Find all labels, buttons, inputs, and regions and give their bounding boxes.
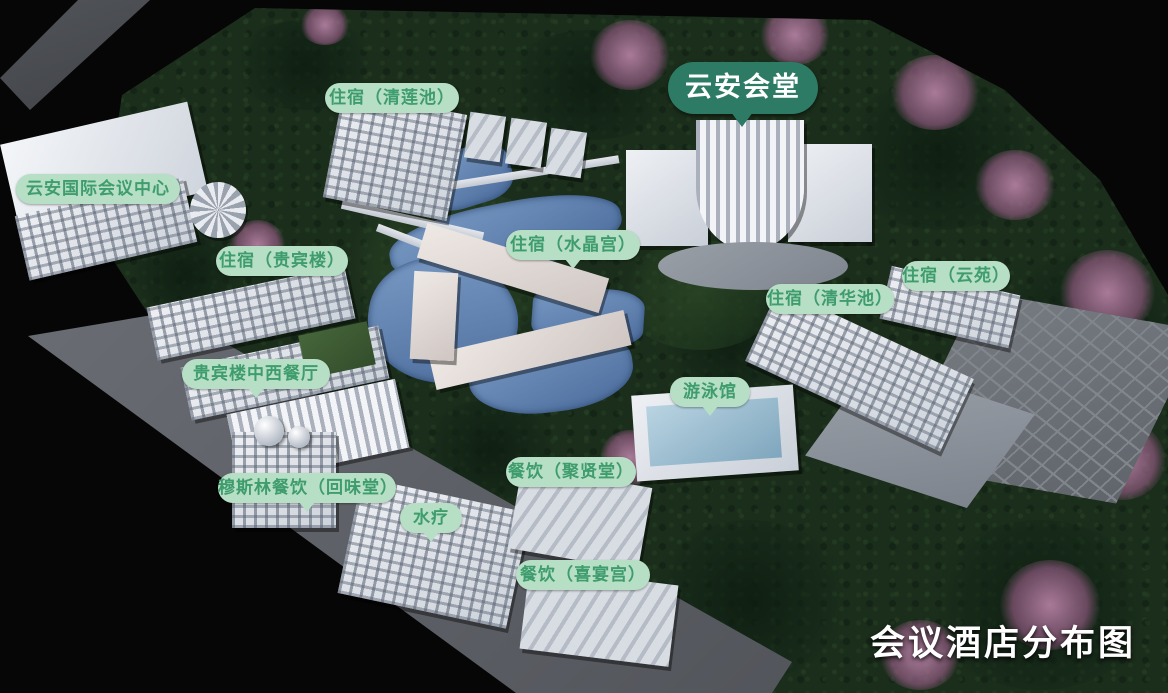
building-yunan-hall bbox=[696, 120, 804, 250]
mosque-dome bbox=[288, 426, 310, 448]
label-shuijinggong: 住宿（水晶宫） bbox=[506, 230, 640, 260]
map-title: 会议酒店分布图 bbox=[870, 615, 1136, 666]
blossom-trees bbox=[975, 150, 1055, 220]
label-qinghuachi: 住宿（清华池） bbox=[766, 284, 894, 314]
label-conference-center: 云安国际会议中心 bbox=[16, 174, 180, 204]
label-xiyangong: 餐饮（喜宴宫） bbox=[516, 560, 650, 590]
label-shuiliao: 水疗 bbox=[400, 503, 462, 533]
villa bbox=[464, 112, 506, 163]
blossom-trees bbox=[890, 55, 980, 130]
blossom-trees bbox=[590, 20, 670, 90]
main-badge-yunan-hall: 云安会堂 bbox=[668, 62, 818, 114]
label-guibinlou: 住宿（贵宾楼） bbox=[216, 246, 348, 276]
villa bbox=[545, 128, 587, 179]
villa bbox=[505, 118, 547, 169]
building-shuijinggong bbox=[410, 271, 459, 361]
blossom-trees bbox=[760, 5, 830, 65]
hotel-map: 云安会堂 住宿（清莲池） 云安国际会议中心 住宿（贵宾楼） 住宿（水晶宫） 住宿… bbox=[0, 0, 1168, 693]
label-yunyuan: 住宿（云苑） bbox=[902, 261, 1010, 291]
hall-plaza bbox=[658, 242, 848, 290]
label-qinglianchi: 住宿（清莲池） bbox=[325, 83, 459, 113]
label-juxiantang: 餐饮（聚贤堂） bbox=[506, 457, 636, 487]
blossom-trees bbox=[300, 5, 350, 45]
label-youyongguan: 游泳馆 bbox=[670, 377, 750, 407]
garden-pavilion bbox=[190, 182, 246, 238]
mosque-dome bbox=[254, 416, 284, 446]
label-guibinlou-restaurant: 贵宾楼中西餐厅 bbox=[182, 359, 330, 389]
label-muslim-restaurant: 穆斯林餐饮（回味堂） bbox=[218, 473, 396, 503]
